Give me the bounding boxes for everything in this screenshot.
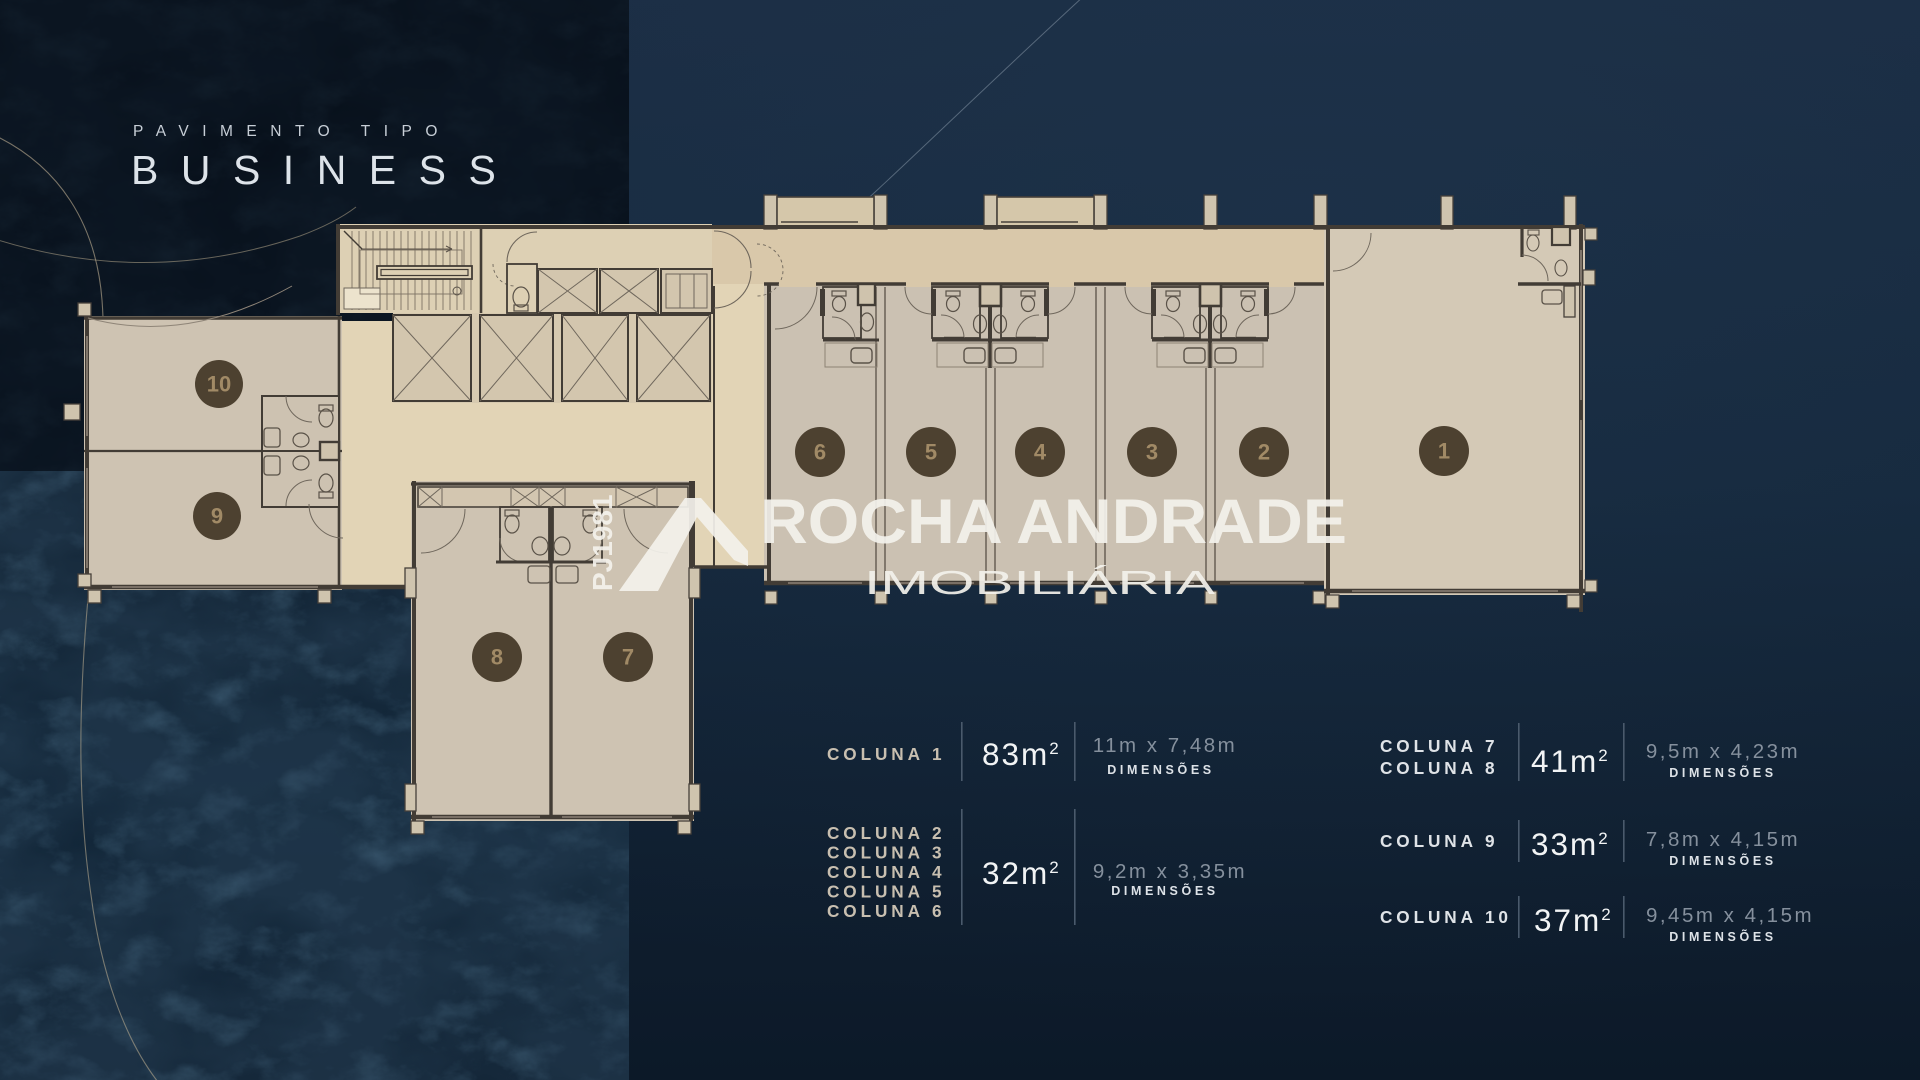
svg-text:DIMENSÕES: DIMENSÕES: [1669, 853, 1776, 868]
svg-text:COLUNA 5: COLUNA 5: [827, 882, 945, 902]
svg-text:PAVIMENTO TIPO: PAVIMENTO TIPO: [133, 123, 451, 140]
svg-text:1: 1: [1438, 439, 1450, 464]
svg-text:COLUNA 1: COLUNA 1: [827, 744, 945, 764]
svg-text:COLUNA 2: COLUNA 2: [827, 823, 945, 843]
svg-text:IMOBILIÁRIA: IMOBILIÁRIA: [864, 564, 1215, 601]
svg-text:32m2: 32m2: [982, 855, 1061, 891]
svg-text:8: 8: [491, 645, 503, 670]
svg-text:COLUNA 3: COLUNA 3: [827, 843, 945, 863]
svg-text:10: 10: [207, 372, 231, 397]
svg-text:ROCHA ANDRADE: ROCHA ANDRADE: [760, 487, 1347, 557]
svg-text:5: 5: [925, 440, 937, 465]
svg-text:9,2m x 3,35m: 9,2m x 3,35m: [1093, 860, 1247, 883]
svg-text:37m2: 37m2: [1534, 902, 1613, 938]
svg-text:3: 3: [1146, 440, 1158, 465]
svg-text:DIMENSÕES: DIMENSÕES: [1669, 929, 1776, 944]
svg-text:COLUNA 7: COLUNA 7: [1380, 736, 1498, 756]
svg-text:2: 2: [1258, 440, 1270, 465]
svg-text:COLUNA 9: COLUNA 9: [1380, 831, 1498, 851]
svg-text:11m x 7,48m: 11m x 7,48m: [1093, 734, 1237, 757]
svg-text:7: 7: [622, 645, 634, 670]
svg-text:83m2: 83m2: [982, 736, 1061, 772]
svg-text:4: 4: [1034, 440, 1047, 465]
svg-text:41m2: 41m2: [1531, 743, 1610, 779]
svg-text:9,45m x 4,15m: 9,45m x 4,15m: [1646, 904, 1814, 927]
svg-text:COLUNA 6: COLUNA 6: [827, 901, 945, 921]
svg-text:9,5m x 4,23m: 9,5m x 4,23m: [1646, 740, 1800, 763]
svg-text:33m2: 33m2: [1531, 826, 1610, 862]
svg-text:DIMENSÕES: DIMENSÕES: [1111, 883, 1218, 898]
svg-text:9: 9: [211, 504, 223, 529]
svg-text:BUSINESS: BUSINESS: [131, 147, 518, 193]
svg-text:7,8m x 4,15m: 7,8m x 4,15m: [1646, 828, 1800, 851]
svg-text:COLUNA 4: COLUNA 4: [827, 862, 945, 882]
svg-text:DIMENSÕES: DIMENSÕES: [1107, 762, 1214, 777]
svg-text:DIMENSÕES: DIMENSÕES: [1669, 765, 1776, 780]
svg-text:COLUNA 10: COLUNA 10: [1380, 907, 1512, 927]
svg-text:6: 6: [814, 440, 826, 465]
svg-text:PJ1981: PJ1981: [587, 494, 618, 591]
svg-text:COLUNA 8: COLUNA 8: [1380, 758, 1498, 778]
